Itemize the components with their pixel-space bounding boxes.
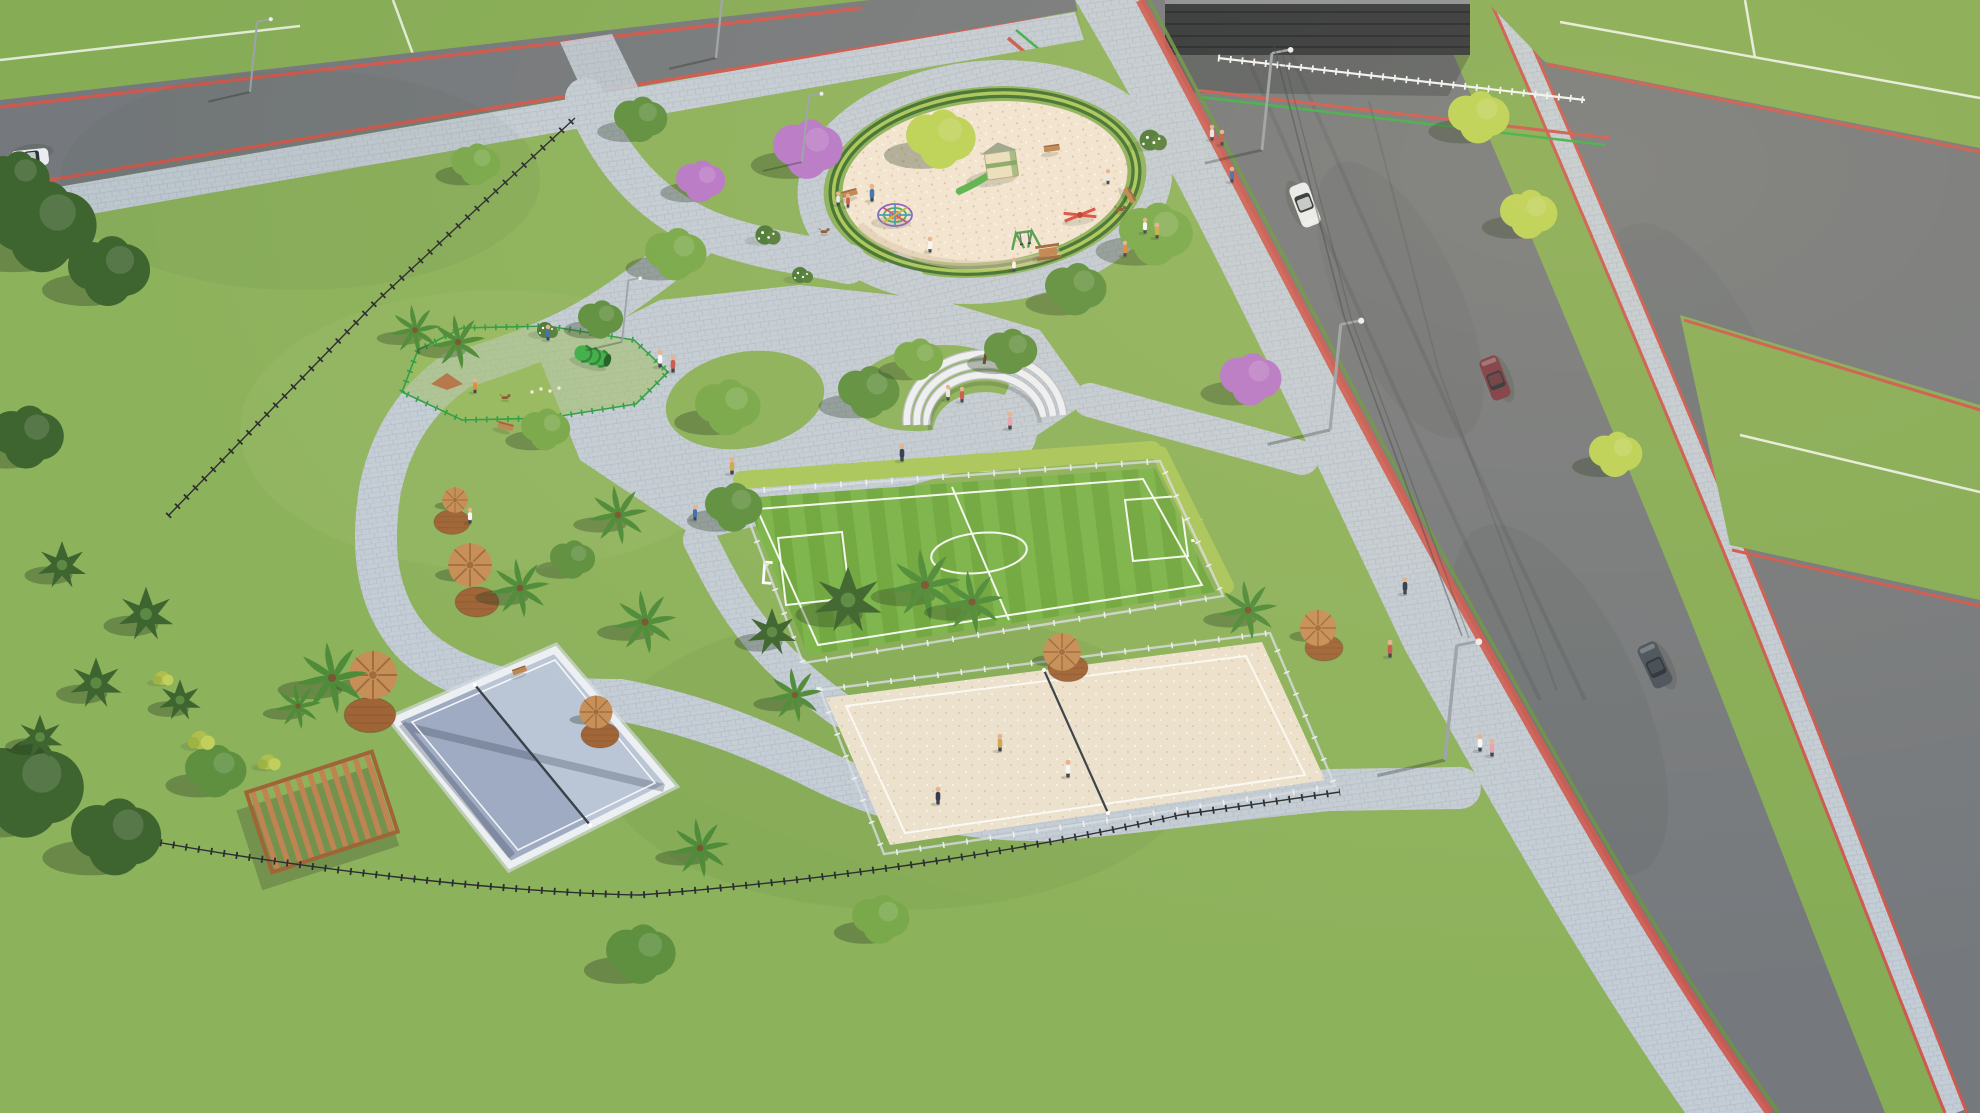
sunlight-overlay [0, 0, 1980, 1113]
park-aerial-scene [0, 0, 1980, 1113]
render-canvas [0, 0, 1980, 1113]
